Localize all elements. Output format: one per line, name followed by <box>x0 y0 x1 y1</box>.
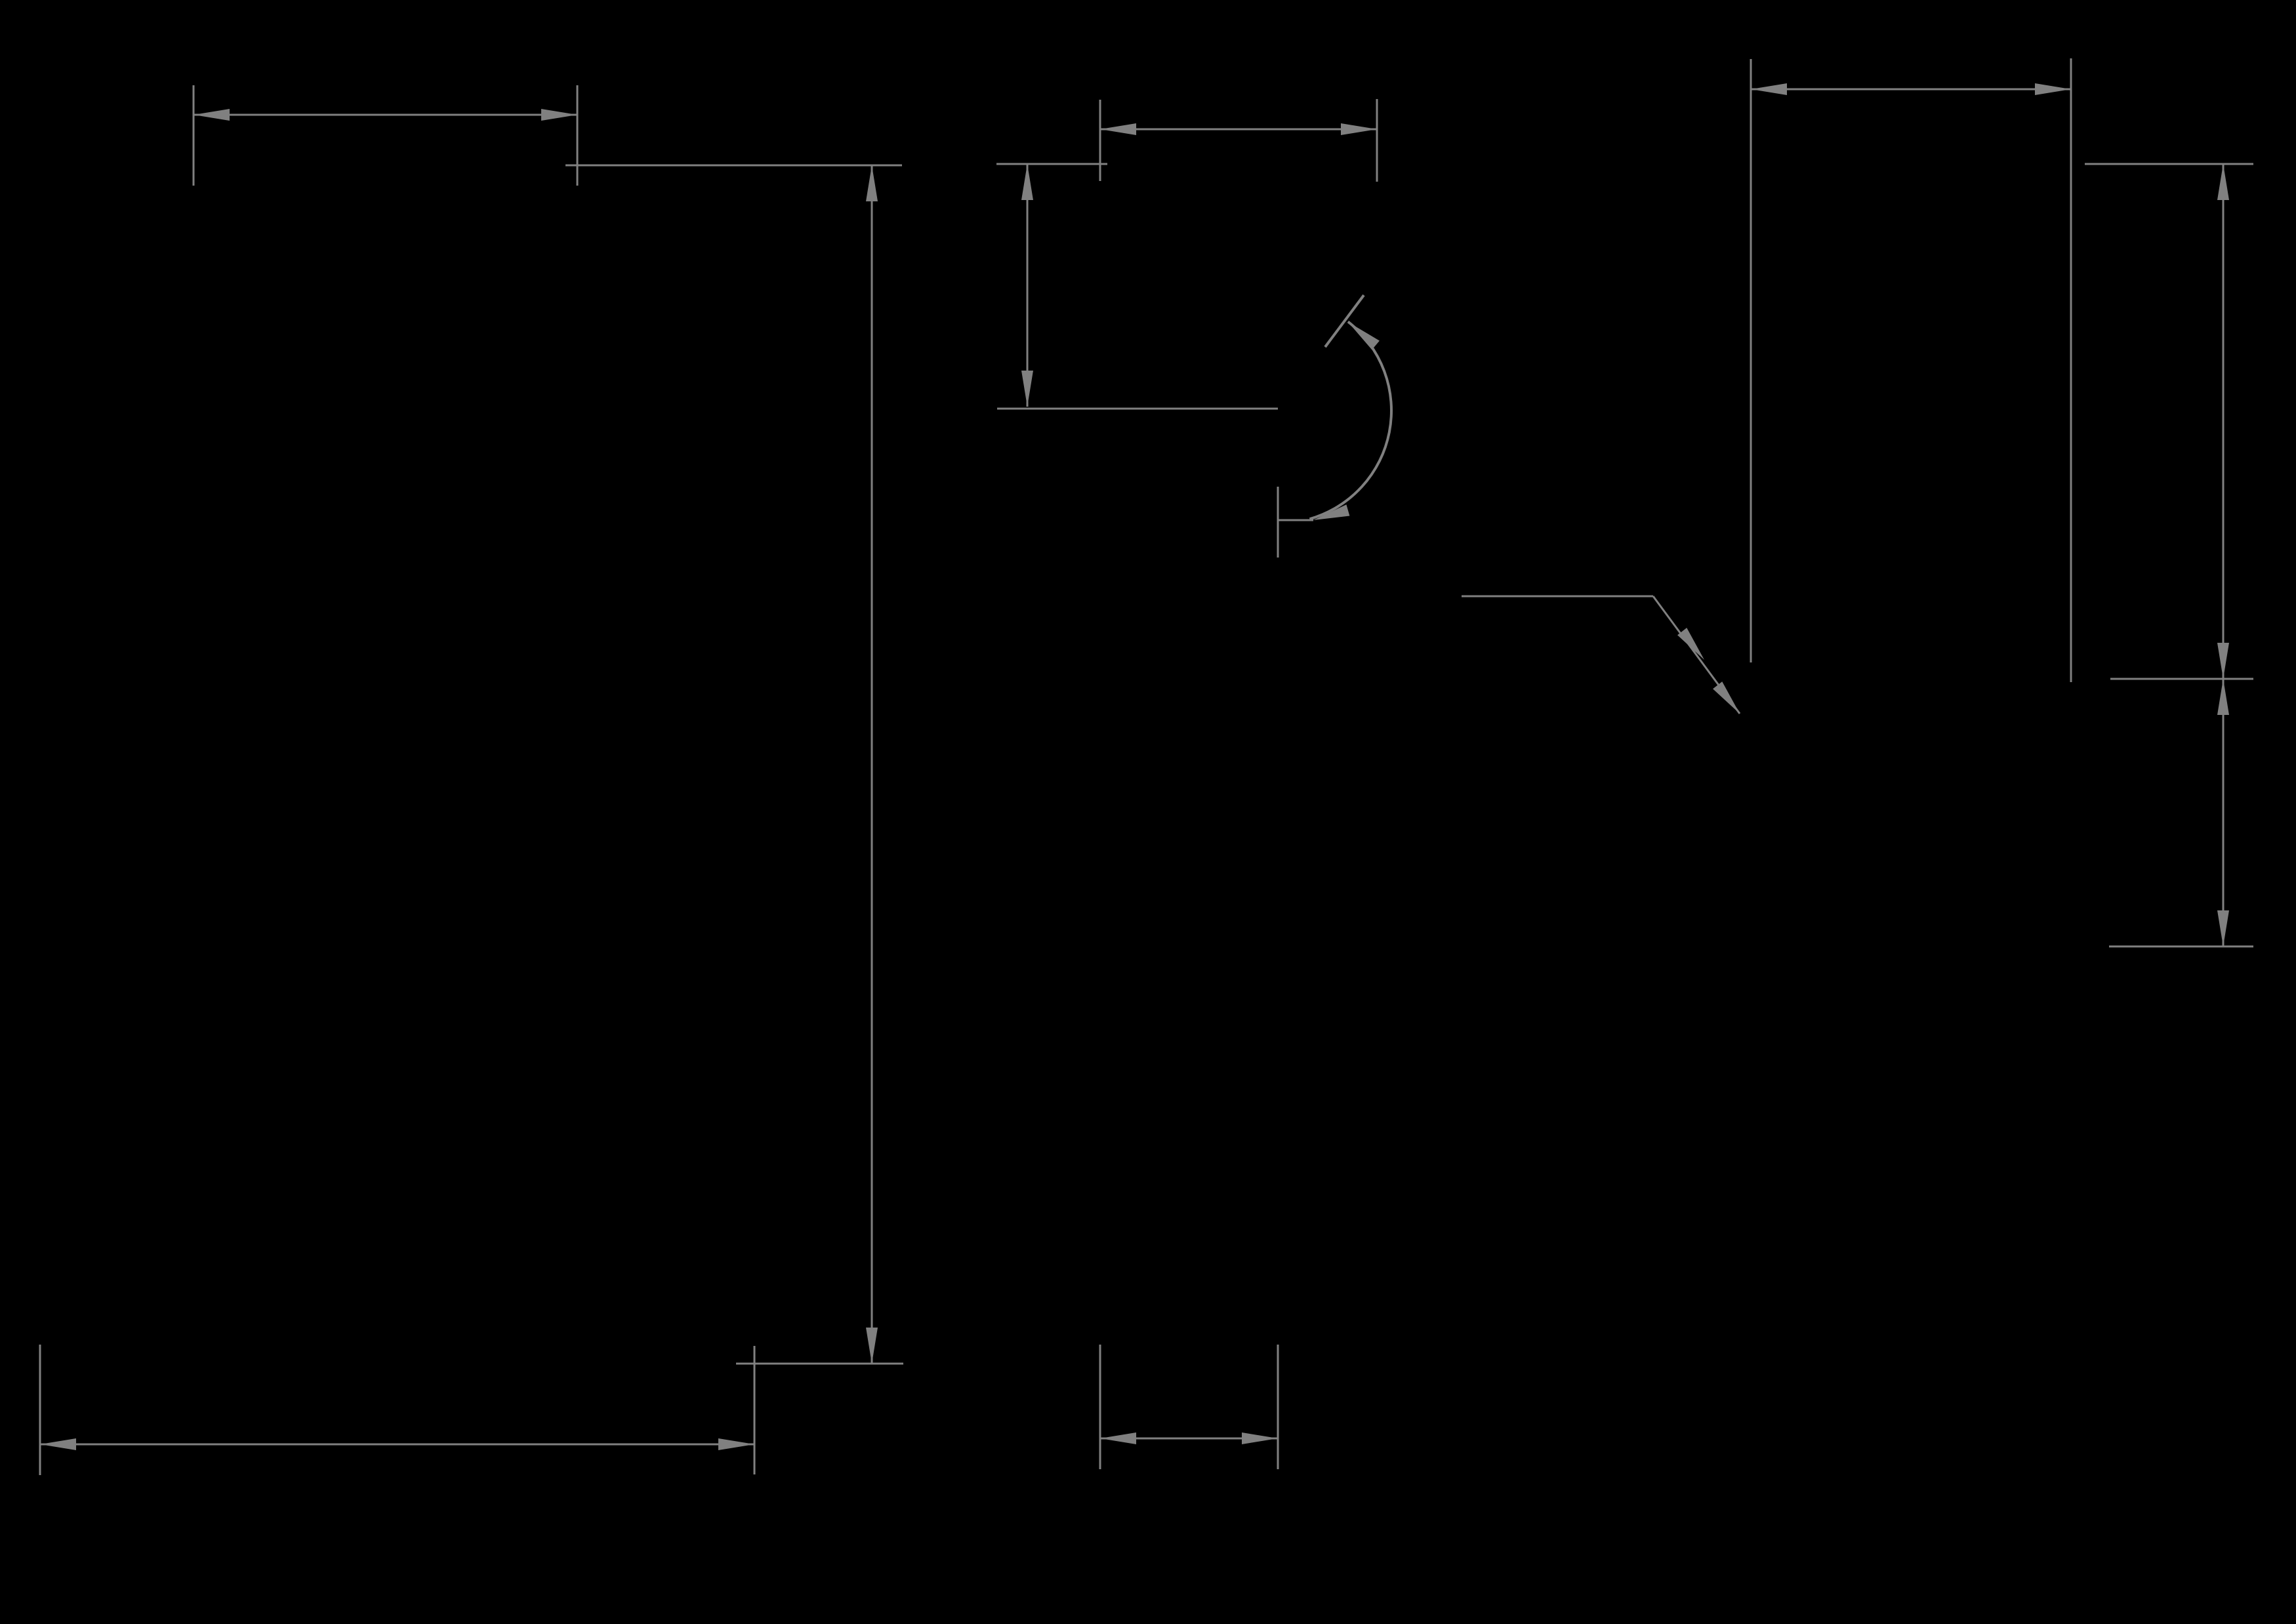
dim-top-right-arrow-left <box>1751 83 1787 95</box>
dim-right-lower-arrow-bottom <box>2217 910 2229 946</box>
dim-vertical-long-arrow-top <box>866 165 878 201</box>
dim-bottom-middle-arrow-right <box>1242 1432 1278 1444</box>
dim-top-middle-arrow-right <box>1341 123 1377 135</box>
dim-top-left-arrow-right <box>541 109 577 121</box>
dim-right-upper-arrow-bottom <box>2217 643 2229 679</box>
dim-vertical-short-arrow-bottom <box>1021 371 1033 407</box>
dim-right-upper-arrow-top <box>2217 164 2229 200</box>
dim-vertical-long-arrow-bottom <box>866 1328 878 1364</box>
dim-vertical-short-arrow-top <box>1021 164 1033 200</box>
dim-top-right-arrow-right <box>2035 83 2071 95</box>
dim-bottom-left-arrow-left <box>40 1438 76 1450</box>
leader-arrow-mid <box>1677 628 1704 660</box>
leader-arrow-end <box>1713 681 1740 714</box>
drawing-stage <box>0 0 2296 1624</box>
technical-drawing <box>0 0 2296 1624</box>
dim-top-left-arrow-left <box>194 109 230 121</box>
dim-bottom-left-arrow-right <box>718 1438 754 1450</box>
dim-bottom-middle-arrow-left <box>1100 1432 1136 1444</box>
angle-surface-tick <box>1325 295 1364 347</box>
dim-right-lower-arrow-top <box>2217 679 2229 715</box>
angular-arc-arrow-top <box>1348 322 1380 350</box>
angular-dimension-arc <box>1309 321 1391 519</box>
dim-top-middle-arrow-left <box>1100 123 1136 135</box>
angular-arc-arrow-bottom <box>1313 504 1349 520</box>
